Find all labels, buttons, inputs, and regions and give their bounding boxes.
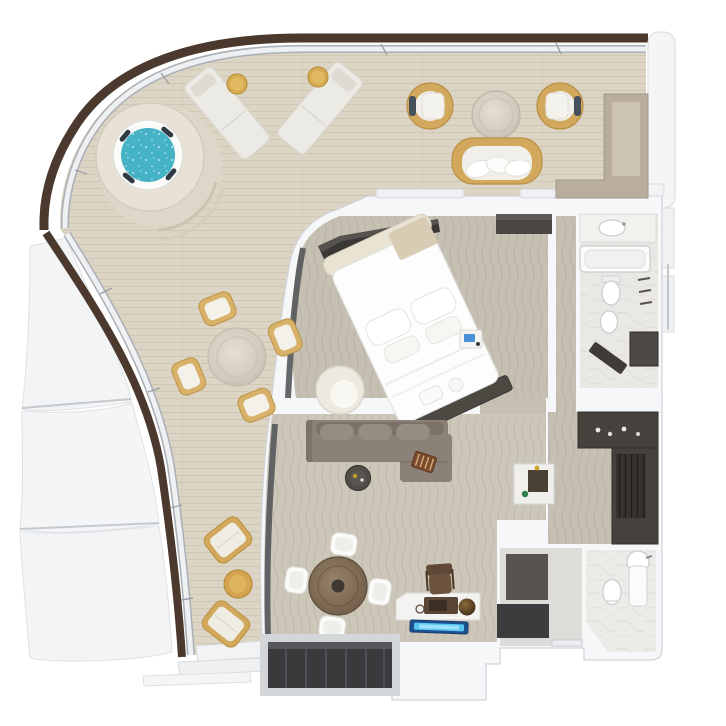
bedroom-wardrobe-top [496,214,552,220]
terrace-storage-counter-face [612,102,640,176]
niche-lamp [535,466,540,471]
hot-tub-water-sparkle [121,128,175,182]
nightstand [460,330,482,348]
desk-card [446,616,456,619]
swivel-chair [316,366,364,414]
wardrobe-slats [616,454,646,518]
window-ledge [268,642,392,649]
side-table-left [227,74,247,94]
pantry-counter [578,412,658,448]
bathtub-inner [585,250,645,268]
wall-slab-1 [376,189,464,198]
terrace-end-wall-cap [648,32,675,208]
master-bathroom [580,214,658,388]
wicker-armchair-left [407,83,453,129]
niche-desk [528,470,548,492]
entry-door-leaf [552,640,582,646]
phone [476,342,480,346]
illuminated-plaque [410,620,468,634]
bedroom-passage [480,398,546,416]
sofa-cushion-3 [396,424,430,440]
floorplan-stage [0,0,726,726]
entry-hall [497,548,582,646]
deck-step-3 [143,672,251,686]
vanity-sink [599,220,625,236]
hull-panel-3 [20,526,172,661]
bidet [601,311,618,333]
decorative-sphere [459,599,476,616]
entry-door-mat [497,604,549,638]
hull-panel-2 [20,403,159,532]
writing-desk [396,593,480,620]
floorplan-render [0,0,726,726]
corridor-carpet-pattern [556,216,576,412]
desk-chair [426,563,454,595]
shower [630,332,658,366]
radio-face [429,600,447,611]
desk-clock [416,605,424,613]
pedestal-sink-column [629,566,647,606]
table-centerpiece [332,580,345,593]
niche-plant [522,491,528,497]
tablet [464,334,475,342]
vanity-faucet [622,222,625,225]
sofa-cushion-1 [320,424,354,440]
toilet [602,281,620,305]
entry-runner [506,554,548,600]
sofa-cushion-2 [358,424,392,440]
coffee-table [346,466,371,491]
wicker-armchair-right [537,83,583,129]
window-wall [260,634,400,696]
armchair-back-cushion [574,96,581,116]
armchair-back-cushion [409,96,416,116]
vanity-niche [514,464,554,504]
wicker-loveseat [452,138,542,184]
side-table-right [308,67,328,87]
